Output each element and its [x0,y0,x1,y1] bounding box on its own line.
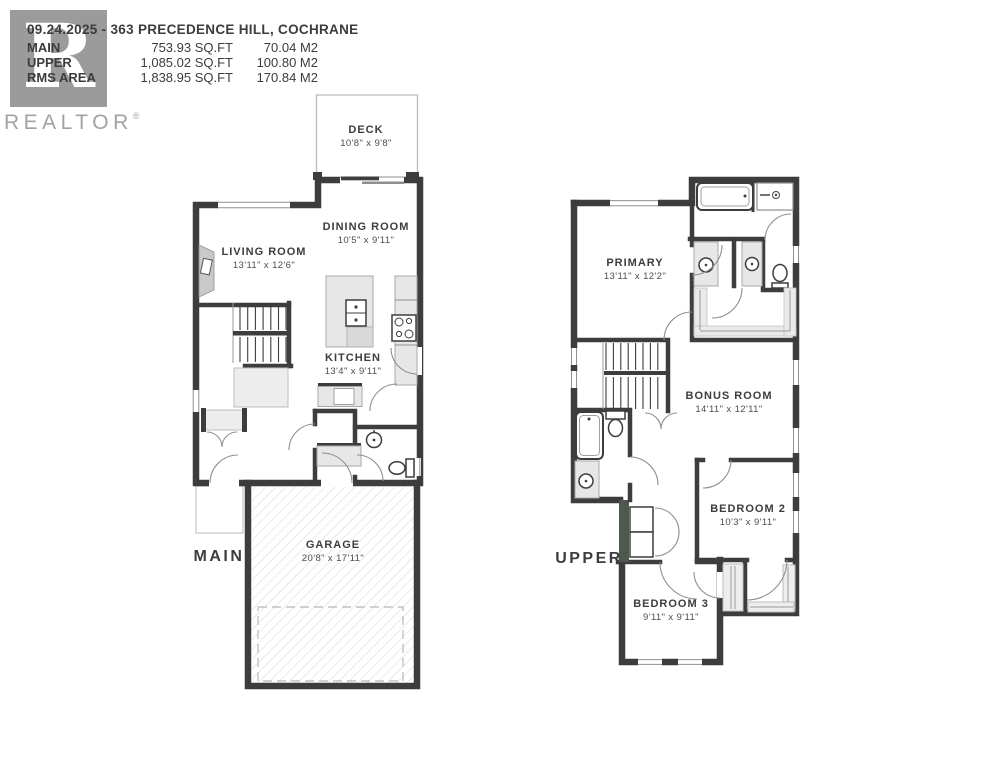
main-bath [575,411,625,498]
floor-plan-page: { "header": { "title": "09.24.2025 - 363… [0,0,993,768]
room-label-bedroom3: BEDROOM 3 [633,598,709,610]
realtor-wordmark: REALTOR® [4,111,139,135]
area-label: MAIN [27,40,115,55]
floor-label-upper: UPPER [555,550,623,567]
garage-mandoor-cut [321,479,353,487]
upper-floor-plan: PRIMARY 13'11" x 12'2" BONUS ROOM 14'11"… [555,160,805,680]
area-sqft: 1,838.95 SQ.FT [115,70,233,85]
walkin-closet [694,288,796,336]
main-stairs [233,303,290,407]
plan-header: 09.24.2025 - 363 PRECEDENCE HILL, COCHRA… [27,22,358,86]
area-row-main: MAIN 753.93 SQ.FT 70.04 M2 [27,40,358,55]
fireplace [199,245,214,297]
floor-label-main: MAIN [194,548,245,565]
ensuite [694,183,793,288]
ensuite-shower [757,183,793,210]
mudroom-bench [317,443,361,466]
bath-vanity [575,461,599,498]
room-dims-bonus: 14'11" x 12'11" [695,404,762,415]
room-dims-garage: 20'8" x 17'11" [302,553,364,564]
powder-toilet [389,459,414,477]
kitchen-counter [392,276,417,385]
ensuite-vanity-right [742,242,762,286]
island-sink [346,300,366,326]
ensuite-vanity-left [694,242,718,286]
area-m2: 170.84 M2 [233,70,318,85]
room-label-primary: PRIMARY [606,257,663,269]
powder-sink [367,430,382,448]
laundry-stack [630,507,653,557]
room-label-dining: DINING ROOM [323,221,410,233]
area-m2: 100.80 M2 [233,55,318,70]
area-label: RMS AREA [27,70,115,85]
room-label-bonus: BONUS ROOM [686,390,773,402]
front-door-cut [209,479,239,487]
bedroom3-closet [723,564,743,611]
upper-stairs [603,343,666,409]
stove [392,315,416,341]
bath-toilet [606,411,625,437]
garage-hatch [252,487,414,684]
kitchen-lower-counter [318,383,362,407]
room-label-living: LIVING ROOM [222,246,307,258]
room-dims-bedroom2: 10'3" x 9'11" [720,517,777,528]
room-dims-primary: 13'11" x 12'2" [604,271,666,282]
patio-sliding-door [340,176,404,184]
powder-room [367,430,415,477]
front-porch-outline [196,486,243,533]
bedroom2-closet [748,565,795,612]
room-dims-kitchen: 13'4" x 9'11" [325,366,382,377]
room-dims-dining: 10'5" x 9'11" [338,235,395,246]
room-label-garage: GARAGE [306,539,360,551]
room-dims-living: 13'11" x 12'6" [233,260,295,271]
room-dims-deck: 10'8" x 9'8" [340,138,392,149]
understair-closet [234,368,288,407]
room-label-deck: DECK [348,124,383,136]
ensuite-toilet [772,265,788,289]
area-row-rms: RMS AREA 1,838.95 SQ.FT 170.84 M2 [27,70,358,85]
area-row-upper: UPPER 1,085.02 SQ.FT 100.80 M2 [27,55,358,70]
main-floor-plan: DECK 10'8" x 9'8" DINING ROOM 10'5" x 9'… [185,85,427,700]
area-sqft: 753.93 SQ.FT [115,40,233,55]
area-m2: 70.04 M2 [233,40,318,55]
room-label-bedroom2: BEDROOM 2 [710,503,786,515]
kitchen-island [326,276,373,347]
date-address-title: 09.24.2025 - 363 PRECEDENCE HILL, COCHRA… [27,22,358,37]
area-label: UPPER [27,55,115,70]
area-sqft: 1,085.02 SQ.FT [115,55,233,70]
room-dims-bedroom3: 9'11" x 9'11" [643,612,699,623]
room-label-kitchen: KITCHEN [325,352,381,364]
registered-symbol: ® [133,111,140,121]
bath-tub [576,412,603,459]
ensuite-tub [697,183,753,210]
area-table: MAIN 753.93 SQ.FT 70.04 M2 UPPER 1,085.0… [27,40,358,86]
entry-closet [201,408,247,432]
